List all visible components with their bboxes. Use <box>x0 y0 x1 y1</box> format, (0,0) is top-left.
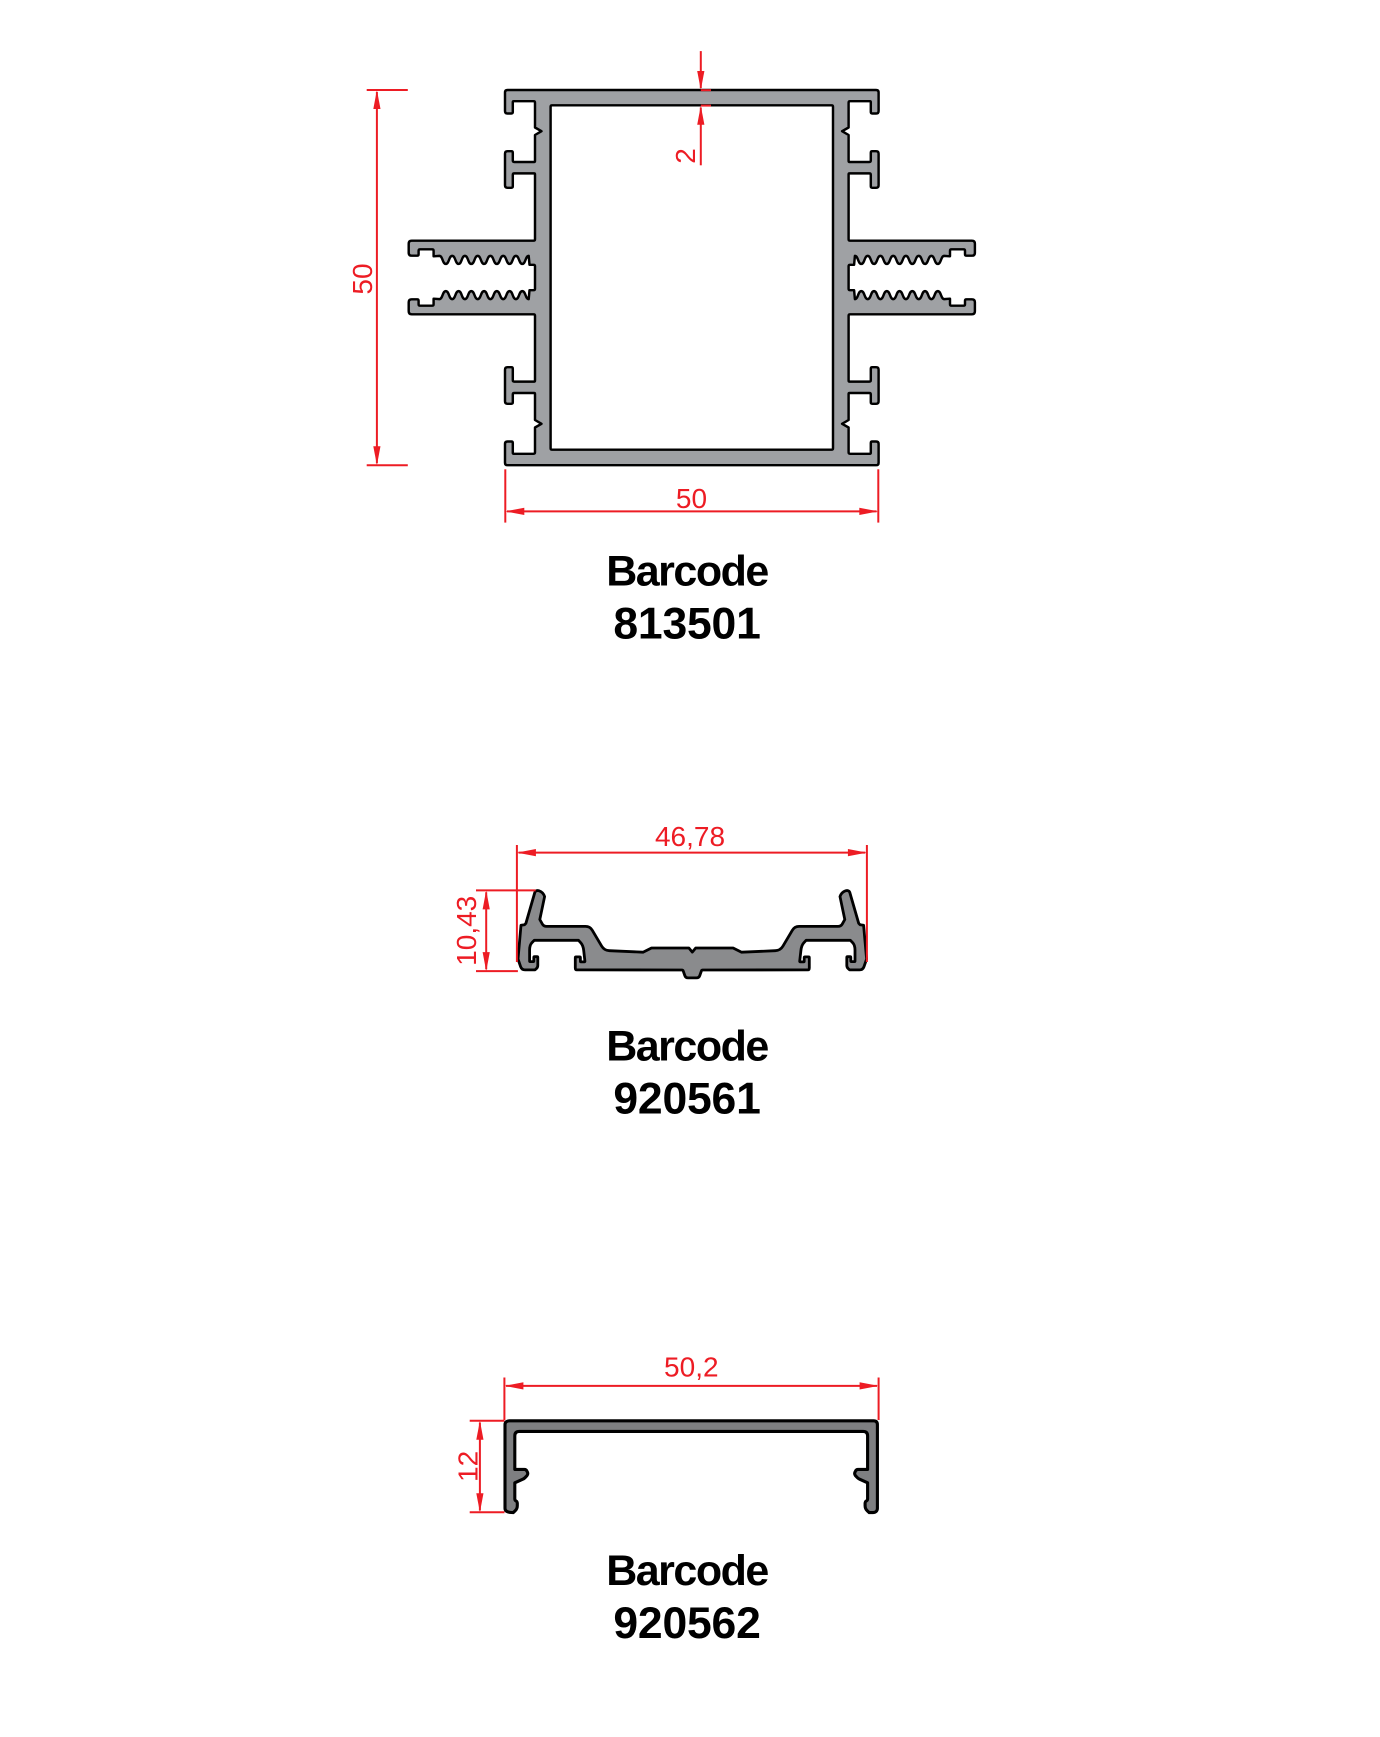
svg-text:813501: 813501 <box>613 600 760 649</box>
svg-text:50,2: 50,2 <box>664 1352 719 1383</box>
svg-text:920562: 920562 <box>613 1599 760 1648</box>
svg-text:920561: 920561 <box>613 1075 760 1124</box>
svg-text:46,78: 46,78 <box>655 821 725 852</box>
svg-text:Barcode: Barcode <box>606 1023 768 1071</box>
svg-text:50: 50 <box>676 483 707 514</box>
svg-text:Barcode: Barcode <box>606 1547 768 1595</box>
svg-text:2: 2 <box>670 148 701 164</box>
svg-text:Barcode: Barcode <box>606 548 768 596</box>
svg-text:50: 50 <box>347 263 378 294</box>
svg-text:12: 12 <box>453 1451 484 1482</box>
svg-text:10,43: 10,43 <box>451 896 482 966</box>
